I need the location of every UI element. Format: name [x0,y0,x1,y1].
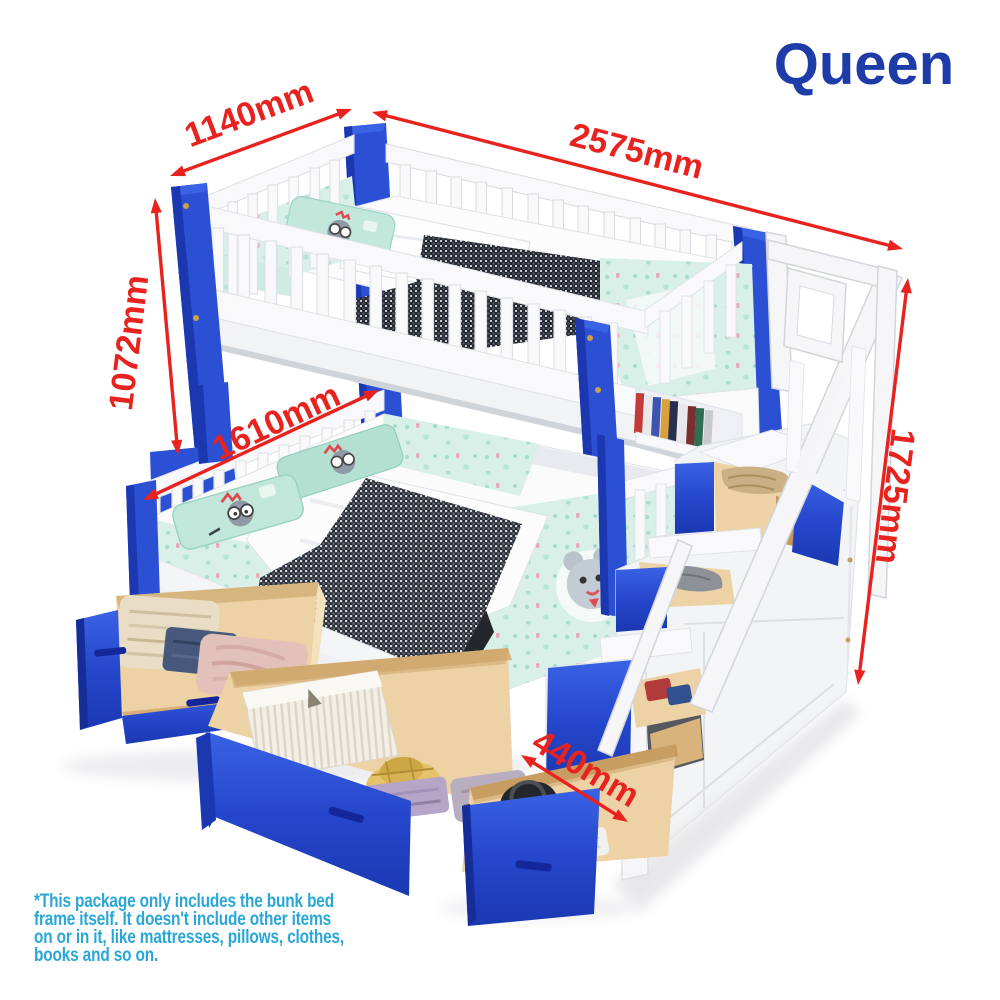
svg-text:books and so on.: books and so on. [34,943,158,965]
svg-text:Queen: Queen [774,32,955,97]
